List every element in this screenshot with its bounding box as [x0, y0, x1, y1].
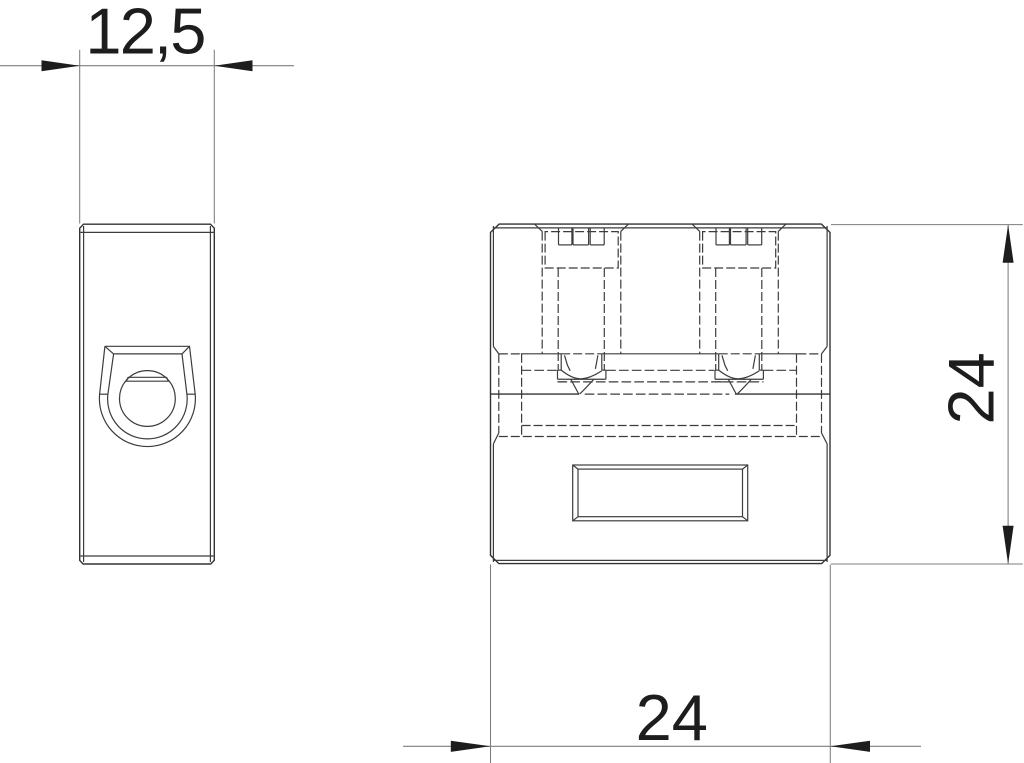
svg-text:24: 24	[636, 681, 708, 754]
svg-text:12,5: 12,5	[85, 0, 204, 67]
svg-text:24: 24	[935, 352, 1008, 424]
